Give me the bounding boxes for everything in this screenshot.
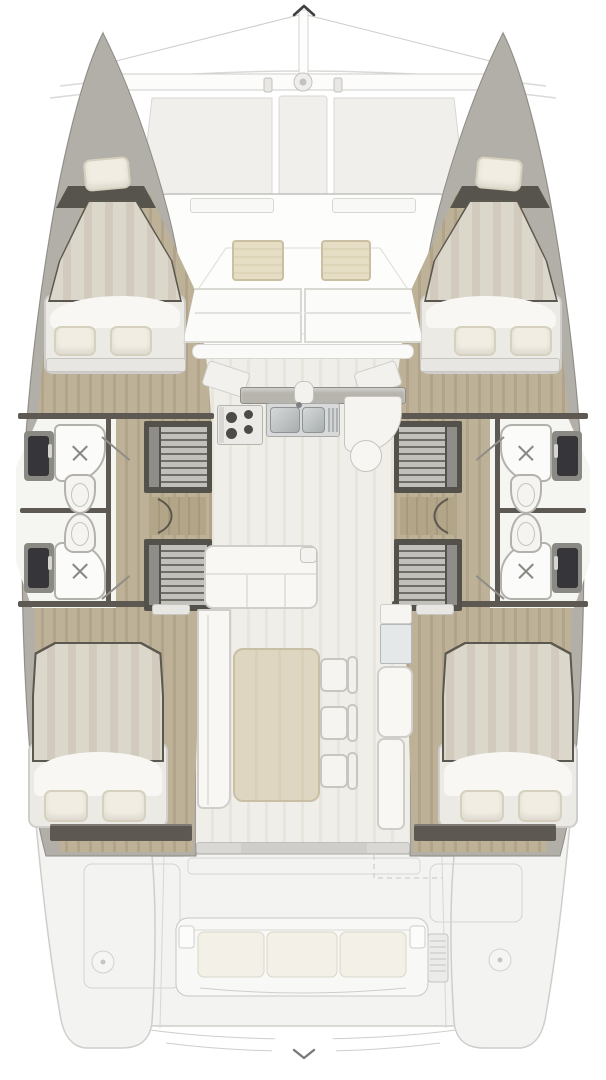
right-forward-pillow-1	[510, 326, 552, 356]
sink-drainboard	[328, 408, 338, 432]
right-head-divider-wall	[496, 508, 586, 513]
right-aft-berth-duvet	[444, 644, 572, 760]
scroll-up-button[interactable]	[290, 2, 318, 19]
forward-bench-left-seam	[195, 312, 302, 314]
sink-faucet	[296, 402, 302, 408]
scroll-down-button[interactable]	[272, 1036, 336, 1072]
dining-chair-1-back	[347, 656, 358, 694]
right-forward-bed-foot	[420, 358, 560, 372]
right-forward-sink-basin	[557, 436, 578, 476]
galley-sink-unit	[266, 403, 340, 437]
forward-cockpit-bench-left	[183, 288, 302, 343]
foredeck-hatch-left	[190, 198, 274, 213]
settee-seam	[207, 615, 209, 805]
right-bow-cushion	[475, 156, 524, 192]
nav-chart-table	[380, 624, 412, 664]
dining-chair-3-seat	[320, 754, 348, 788]
dining-chair-1-seat	[320, 658, 348, 692]
sofa-cushion-seam-1	[246, 575, 248, 607]
stove-burner-4	[244, 425, 253, 434]
sofa-cushion-seam-2	[284, 575, 286, 607]
dining-chair-2-back	[347, 704, 358, 742]
saloon-right-sideboard	[377, 738, 405, 830]
right-forward-stair-rail	[447, 427, 457, 487]
right-stair-landing	[400, 497, 456, 535]
forward-cockpit-bench-right	[304, 288, 423, 343]
right-hull-interior	[0, 0, 606, 1080]
right-landing-rail-curve	[400, 497, 456, 535]
right-aft-stair-treads	[399, 545, 445, 605]
dining-chair-2-seat	[320, 706, 348, 740]
dining-chair-3-back	[347, 752, 358, 790]
forward-cockpit-cushion-right	[321, 240, 371, 281]
right-aft-cabin-step	[416, 604, 454, 615]
right-aft-sink-faucet	[554, 556, 558, 570]
right-forward-stair-treads	[399, 427, 445, 487]
right-aft-sink-basin	[557, 548, 578, 588]
stove-burner-3	[244, 410, 253, 419]
stove-burner-2	[226, 428, 237, 439]
sofa-back-seam	[206, 573, 316, 575]
foredeck-hatch-right	[332, 198, 416, 213]
right-aft-vanity-sink	[552, 543, 582, 593]
chevron-down-icon	[290, 1046, 318, 1062]
right-aft-stair-rail	[447, 545, 457, 605]
saloon-dining-table	[233, 648, 320, 802]
right-aft-pillow-2	[460, 790, 504, 822]
sink-bowl-right	[302, 407, 325, 433]
right-aft-pillow-1	[518, 790, 562, 822]
saloon-side-settee	[197, 609, 231, 809]
sliding-door	[241, 843, 367, 853]
right-forward-pillow-2	[454, 326, 496, 356]
right-stern-shelf	[414, 824, 556, 841]
nav-seat	[377, 666, 413, 738]
forward-step-band	[192, 344, 414, 359]
nav-cabinet	[380, 604, 412, 624]
right-aft-toilet	[510, 513, 542, 553]
right-forward-berth-duvet	[426, 202, 556, 300]
forward-bench-right-seam	[304, 312, 411, 314]
galley-stove	[217, 405, 263, 445]
sink-bowl-left	[270, 407, 300, 433]
right-forward-sink-faucet	[554, 444, 558, 458]
catamaran-floor-plan	[0, 0, 606, 1080]
stove-burner-1	[226, 412, 237, 423]
saloon-aft-wall	[196, 842, 410, 854]
galley-counter-round-end	[350, 440, 382, 472]
chevron-up-icon	[290, 2, 318, 19]
sofa-corner-table	[300, 547, 317, 563]
forward-cockpit-cushion-left	[232, 240, 284, 281]
right-aft-berth	[442, 642, 574, 762]
stove-control-strip	[219, 407, 224, 443]
right-bulkhead-forward	[392, 413, 588, 419]
right-forward-berth	[424, 200, 558, 302]
galley-center-faucet	[294, 381, 314, 404]
right-forward-vanity-sink	[552, 431, 582, 481]
